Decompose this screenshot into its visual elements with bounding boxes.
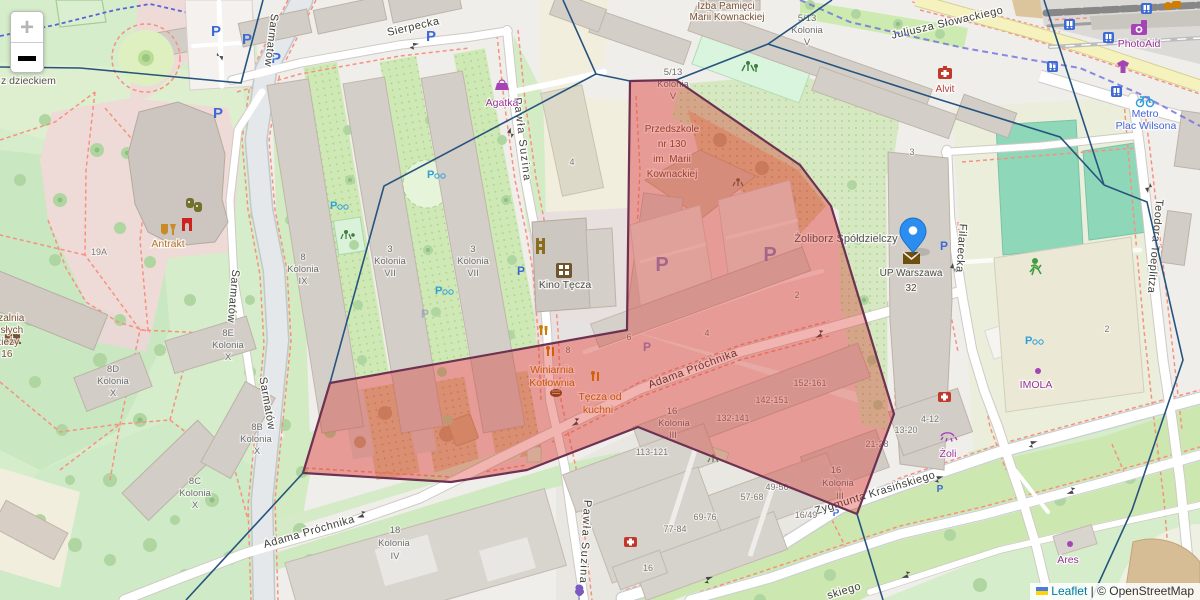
svg-text:X: X xyxy=(192,500,199,511)
svg-text:2: 2 xyxy=(1104,324,1109,334)
svg-text:Kolonia: Kolonia xyxy=(457,256,489,267)
svg-text:P: P xyxy=(211,23,221,40)
svg-text:P: P xyxy=(213,105,223,122)
svg-text:Dorosłych: Dorosłych xyxy=(0,325,23,336)
svg-text:4: 4 xyxy=(569,157,574,167)
svg-text:Kolonia: Kolonia xyxy=(179,488,211,499)
svg-text:69-76: 69-76 xyxy=(693,512,716,522)
svg-text:Metro: Metro xyxy=(1132,108,1159,120)
svg-text:z dzieckiem: z dzieckiem xyxy=(1,75,56,87)
svg-text:V: V xyxy=(804,37,811,48)
svg-text:16/49: 16/49 xyxy=(795,510,818,520)
svg-text:UP Warszawa: UP Warszawa xyxy=(880,268,943,279)
svg-text:X: X xyxy=(110,388,117,399)
svg-text:18: 18 xyxy=(390,525,401,536)
svg-text:Kolonia: Kolonia xyxy=(378,538,410,549)
svg-text:Ares: Ares xyxy=(1057,554,1079,566)
svg-text:5/13: 5/13 xyxy=(664,67,683,78)
svg-text:nr 16: nr 16 xyxy=(0,349,13,360)
svg-text:Kolonia: Kolonia xyxy=(791,25,823,36)
svg-text:8C: 8C xyxy=(189,476,201,487)
svg-text:Antrakt: Antrakt xyxy=(151,238,184,250)
svg-text:3: 3 xyxy=(470,244,475,255)
svg-text:Marii Kownackiej: Marii Kownackiej xyxy=(689,12,764,23)
svg-text:3: 3 xyxy=(909,147,914,157)
svg-text:Agatka: Agatka xyxy=(486,97,519,109)
svg-text:Kino Tęcza: Kino Tęcza xyxy=(539,279,591,291)
svg-text:PhotoAid: PhotoAid xyxy=(1118,38,1161,50)
svg-text:ożyczalnia: ożyczalnia xyxy=(0,313,25,324)
svg-text:8B: 8B xyxy=(251,422,263,433)
svg-text:113-121: 113-121 xyxy=(636,447,668,457)
svg-text:P: P xyxy=(937,484,944,495)
svg-text:P: P xyxy=(426,28,436,45)
svg-text:Kolonia: Kolonia xyxy=(374,256,406,267)
svg-text:P: P xyxy=(940,239,948,253)
svg-text:Kolonia: Kolonia xyxy=(212,340,244,351)
svg-text:X: X xyxy=(225,352,232,363)
svg-text:X: X xyxy=(254,446,261,457)
svg-text:P: P xyxy=(517,264,525,278)
svg-text:P: P xyxy=(1025,335,1032,347)
svg-text:77-84: 77-84 xyxy=(663,524,686,534)
svg-text:19A: 19A xyxy=(91,247,107,257)
svg-text:P: P xyxy=(435,285,442,297)
svg-text:IV: IV xyxy=(391,551,401,562)
svg-text:Kolonia: Kolonia xyxy=(287,264,319,275)
svg-text:Kolonia: Kolonia xyxy=(240,434,272,445)
svg-text:32: 32 xyxy=(905,283,917,294)
svg-text:8D: 8D xyxy=(107,364,119,375)
svg-text:łodzieży: łodzieży xyxy=(0,337,19,348)
svg-text:IMOLA: IMOLA xyxy=(1020,379,1053,391)
svg-text:57-68: 57-68 xyxy=(740,492,763,502)
svg-text:4-12: 4-12 xyxy=(921,414,939,424)
svg-text:P: P xyxy=(330,200,337,212)
svg-text:P: P xyxy=(421,307,429,321)
svg-text:Alvit: Alvit xyxy=(936,84,955,95)
svg-text:Izba Pamięci: Izba Pamięci xyxy=(697,1,754,12)
svg-text:IX: IX xyxy=(299,276,309,287)
svg-text:VII: VII xyxy=(384,268,396,279)
svg-text:Plac Wilsona: Plac Wilsona xyxy=(1116,120,1177,132)
svg-text:P: P xyxy=(427,169,434,181)
svg-text:VII: VII xyxy=(467,268,479,279)
svg-text:8E: 8E xyxy=(222,328,234,339)
svg-text:16: 16 xyxy=(643,563,653,573)
svg-text:Żoli: Żoli xyxy=(940,447,957,460)
svg-text:3: 3 xyxy=(387,244,392,255)
svg-text:13-20: 13-20 xyxy=(894,425,917,435)
svg-text:8: 8 xyxy=(300,252,305,263)
svg-text:Kolonia: Kolonia xyxy=(97,376,129,387)
